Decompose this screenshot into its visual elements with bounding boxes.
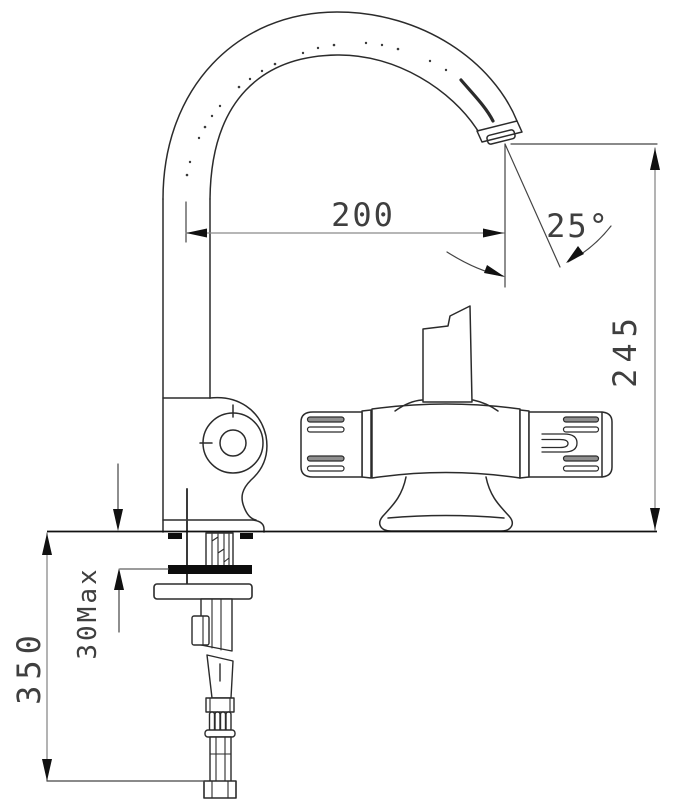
left-collar [362, 410, 371, 478]
arrow-bottom [650, 508, 660, 530]
arrow-arc-right [566, 246, 584, 263]
spout-inner-arc [210, 55, 478, 199]
arrow-top [650, 148, 660, 170]
arrow-down [113, 509, 123, 531]
supply-hose [207, 655, 233, 698]
arrow-right [483, 229, 504, 238]
angle-slanted-ray [505, 144, 560, 267]
gasket-left [168, 533, 182, 539]
spout-end-band [477, 121, 522, 142]
joint-inner-circle [220, 430, 246, 456]
hose-clip [192, 616, 209, 645]
valve-body [372, 404, 520, 478]
rubber-washer [168, 565, 252, 574]
trumpet-base [380, 477, 513, 531]
faucet-technical-drawing: 200 25° 245 350 30Max [0, 0, 684, 800]
under-deck-assembly [120, 489, 253, 798]
hose-connector [205, 698, 235, 737]
lever-handle [423, 306, 472, 402]
arrow-arc-left [484, 265, 505, 277]
drawing-page: 200 25° 245 350 30Max [0, 0, 684, 800]
mixer-valve-assembly [301, 306, 612, 531]
arrow-up [114, 568, 124, 590]
arrow-bottom [42, 759, 52, 781]
hose-lower-tube [210, 737, 231, 782]
dim-label-outlet-angle: 25° [546, 207, 610, 245]
arrow-left [186, 229, 207, 238]
dim-deck-thickness [113, 464, 124, 632]
mounting-plate [154, 584, 252, 599]
arrow-top [42, 533, 52, 555]
dim-label-spout-height: 245 [606, 312, 644, 388]
riser-base-plate [163, 520, 264, 532]
threaded-shank [206, 533, 233, 566]
dim-label-deck-thickness: 30Max [73, 566, 103, 659]
spout-outer-arc [163, 12, 517, 199]
right-collar [520, 410, 529, 478]
dim-label-hose-length: 350 [10, 629, 48, 705]
hose-end-fitting [204, 781, 236, 798]
spout-stipple-dots [186, 42, 448, 177]
dim-label-spout-reach: 200 [331, 196, 395, 234]
gasket-right [240, 533, 253, 539]
